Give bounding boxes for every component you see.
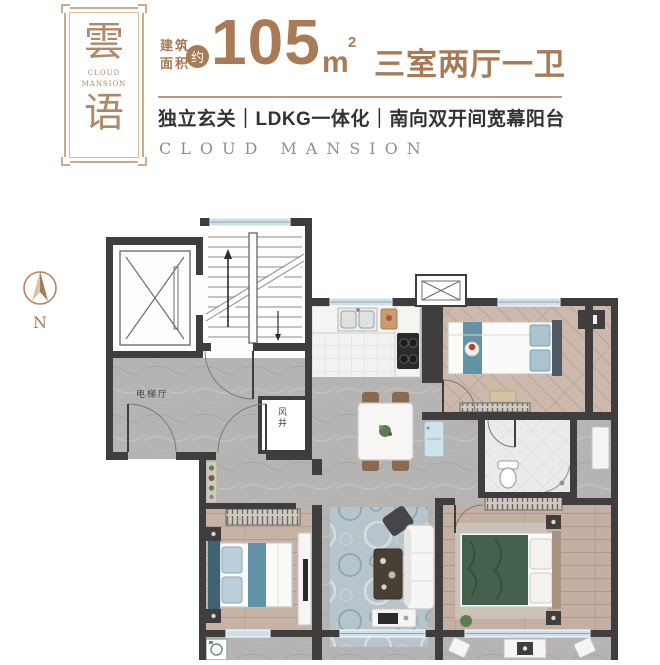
area-unit: m [322, 48, 349, 78]
layout-title: 三室两厅一卫 [374, 39, 566, 84]
master-bedroom [443, 496, 611, 632]
accent-pillow [469, 344, 475, 350]
hall-cabinet [592, 427, 609, 469]
tv [303, 559, 308, 601]
foyer [206, 461, 217, 503]
area-prefix-line1: 建筑 [160, 37, 190, 55]
kitchen-sink [338, 308, 377, 331]
wardrobe [485, 496, 562, 510]
headboard [552, 531, 561, 609]
bathroom [485, 420, 570, 492]
shower-drain-icon [560, 481, 565, 486]
brand-subtitle: CLOUD MANSION [78, 68, 130, 89]
elevator-hall-label: 电梯厅 [136, 387, 169, 400]
elevator [113, 245, 196, 351]
brand-character-top: 雲 [84, 21, 124, 63]
low-cabinet [460, 403, 530, 412]
frame-corner-icon [61, 157, 70, 166]
air-shaft-label: 风井 [276, 407, 289, 429]
pillow [530, 325, 550, 346]
feature-line: 独立玄关｜LDKG一体化｜南向双开间宽幕阳台 [158, 104, 565, 131]
wardrobe [226, 509, 300, 525]
sofa [404, 525, 434, 609]
header-divider [158, 96, 562, 98]
frame-corner-icon [138, 157, 147, 166]
toilet [498, 461, 518, 488]
pillow [530, 539, 552, 569]
frame-corner-icon [138, 4, 147, 13]
flue [416, 275, 466, 306]
refrigerator [424, 421, 444, 457]
pillow [530, 350, 550, 371]
floor-plan: 电梯厅 风井 [0, 215, 660, 660]
coffee-table [374, 549, 402, 599]
brand-character-bottom: 语 [84, 92, 124, 134]
kitchen [312, 306, 420, 377]
floor-plan-drawing [0, 215, 660, 660]
pillow [530, 573, 552, 603]
approx-badge: 约 [186, 45, 209, 68]
tv-cabinet [298, 533, 311, 625]
english-title: CLOUD MANSION [159, 139, 430, 158]
headboard [208, 541, 220, 609]
bedroom-1 [206, 509, 312, 630]
headboard [552, 320, 562, 376]
area-value: 105 [211, 10, 321, 74]
brand-logo-inner: 雲 CLOUD MANSION 语 [69, 12, 139, 158]
tv [378, 613, 398, 624]
plant-icon [460, 615, 472, 627]
poster: 雲 CLOUD MANSION 语 建筑 面积 约 105 m 2 三室两厅一卫… [0, 0, 660, 660]
master-bed [460, 531, 561, 609]
stove [397, 333, 419, 369]
pillow [222, 547, 242, 573]
stairwell [203, 225, 305, 351]
brand-logo-frame: 雲 CLOUD MANSION 语 [64, 7, 144, 163]
bedroom-2-bed [448, 320, 562, 376]
area-unit-superscript: 2 [348, 34, 356, 51]
living-room [330, 505, 434, 647]
bedroom-1-bed [208, 541, 292, 609]
tv-console [372, 609, 416, 627]
bed-bench [490, 391, 516, 402]
pillow [222, 577, 242, 603]
bed-runner [248, 543, 266, 607]
washing-machine [206, 639, 227, 660]
